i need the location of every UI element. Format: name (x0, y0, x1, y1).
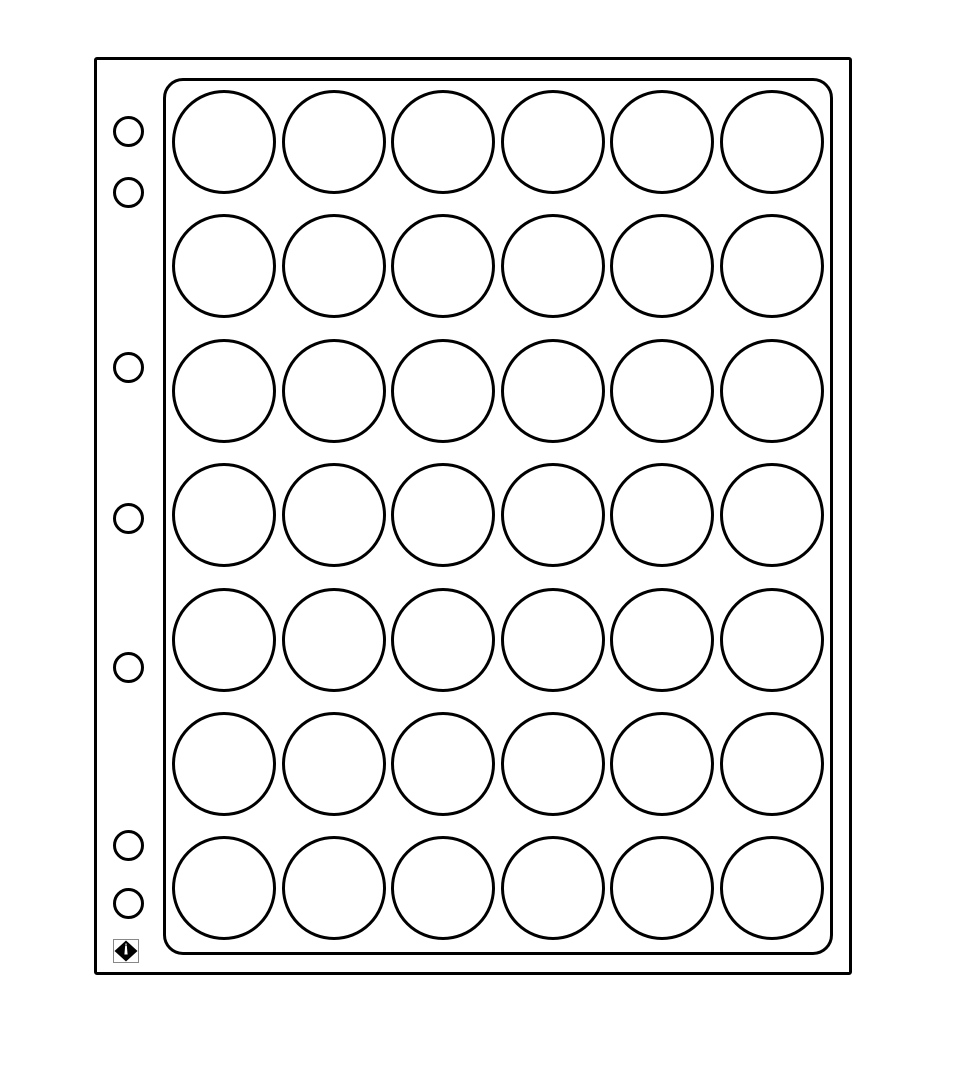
lighthouse-diamond-logo-icon (113, 939, 139, 963)
lighthouse-diamond-logo-svg (113, 939, 139, 963)
binder-sheet (94, 57, 852, 975)
product-illustration (0, 0, 966, 1075)
